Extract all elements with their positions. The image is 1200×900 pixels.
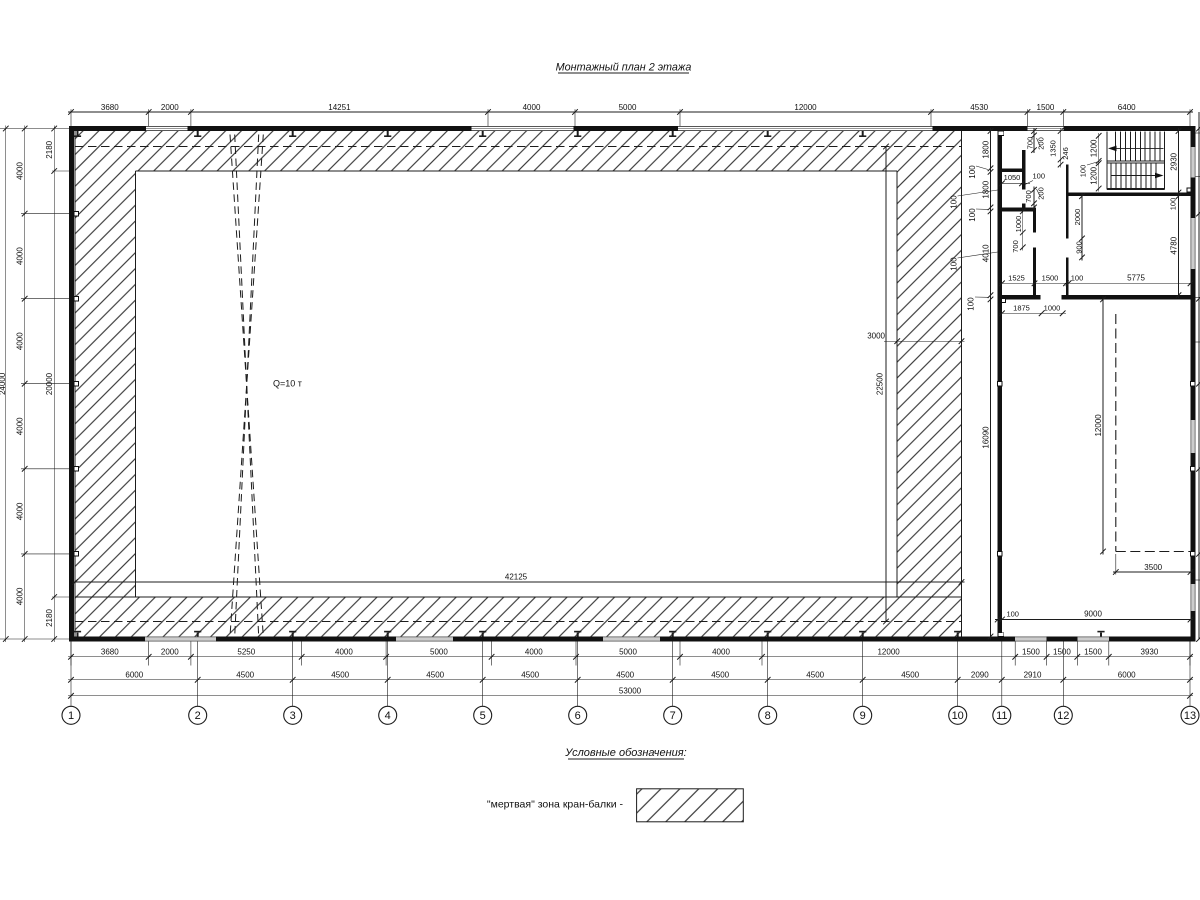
svg-text:Q=10 т: Q=10 т	[273, 378, 302, 388]
svg-text:7: 7	[670, 710, 676, 722]
svg-text:1050: 1050	[1004, 173, 1021, 182]
svg-text:6000: 6000	[1118, 671, 1136, 680]
svg-text:4500: 4500	[901, 671, 919, 680]
svg-text:5000: 5000	[619, 103, 637, 112]
svg-text:3680: 3680	[101, 103, 119, 112]
svg-text:1500: 1500	[1084, 648, 1102, 657]
svg-text:1500: 1500	[1037, 103, 1055, 112]
svg-text:2000: 2000	[161, 103, 179, 112]
svg-text:100: 100	[968, 165, 977, 179]
svg-text:100: 100	[949, 195, 958, 209]
svg-text:53000: 53000	[619, 686, 642, 695]
svg-text:13: 13	[1184, 710, 1196, 722]
svg-text:16090: 16090	[981, 426, 990, 449]
svg-text:1200: 1200	[1090, 139, 1099, 157]
svg-text:100: 100	[1033, 171, 1046, 180]
svg-text:10: 10	[952, 710, 964, 722]
svg-text:4780: 4780	[1169, 236, 1178, 254]
svg-text:4500: 4500	[331, 671, 349, 680]
svg-text:700: 700	[1026, 137, 1035, 150]
svg-text:4500: 4500	[806, 671, 824, 680]
svg-text:3680: 3680	[101, 648, 119, 657]
svg-text:12000: 12000	[1094, 414, 1103, 437]
svg-text:4000: 4000	[16, 247, 25, 265]
svg-text:12000: 12000	[877, 648, 900, 657]
svg-text:3500: 3500	[1144, 563, 1162, 572]
svg-text:1525: 1525	[1008, 274, 1025, 283]
svg-text:9000: 9000	[1084, 609, 1102, 618]
svg-text:1875: 1875	[1013, 303, 1030, 312]
svg-text:8: 8	[765, 710, 771, 722]
svg-text:4000: 4000	[525, 648, 543, 657]
svg-text:5000: 5000	[619, 648, 637, 657]
svg-text:3930: 3930	[1141, 648, 1159, 657]
svg-text:4000: 4000	[523, 103, 541, 112]
svg-text:5250: 5250	[237, 648, 255, 657]
svg-text:1500: 1500	[1053, 648, 1071, 657]
svg-text:2180: 2180	[45, 609, 54, 627]
svg-text:5000: 5000	[430, 648, 448, 657]
svg-text:100: 100	[967, 297, 976, 311]
svg-text:4: 4	[385, 710, 391, 722]
svg-text:1: 1	[68, 710, 74, 722]
svg-text:5775: 5775	[1127, 274, 1145, 283]
svg-text:1500: 1500	[1022, 648, 1040, 657]
svg-text:100: 100	[1168, 198, 1177, 211]
svg-text:4000: 4000	[16, 417, 25, 435]
svg-text:4000: 4000	[16, 502, 25, 520]
svg-text:2930: 2930	[1169, 152, 1178, 170]
svg-text:100: 100	[1006, 609, 1019, 618]
svg-text:100: 100	[1078, 165, 1087, 178]
svg-text:42125: 42125	[505, 572, 528, 581]
svg-text:200: 200	[1036, 137, 1045, 150]
svg-text:2910: 2910	[1024, 671, 1042, 680]
svg-text:5: 5	[480, 710, 486, 722]
svg-text:3: 3	[290, 710, 296, 722]
svg-text:4500: 4500	[616, 671, 634, 680]
svg-text:700: 700	[1011, 240, 1020, 253]
svg-text:4000: 4000	[335, 648, 353, 657]
svg-text:Условные обозначения:: Условные обозначения:	[564, 747, 686, 759]
svg-text:1800: 1800	[981, 180, 990, 198]
svg-text:6400: 6400	[1118, 103, 1136, 112]
svg-text:4500: 4500	[426, 671, 444, 680]
svg-text:22500: 22500	[876, 372, 885, 395]
svg-text:1350: 1350	[1049, 140, 1058, 157]
svg-text:4500: 4500	[236, 671, 254, 680]
svg-text:14251: 14251	[328, 103, 351, 112]
svg-text:4000: 4000	[16, 332, 25, 350]
svg-text:Монтажный план 2 этажа: Монтажный план 2 этажа	[556, 62, 692, 74]
svg-text:700: 700	[1024, 190, 1033, 203]
svg-text:4000: 4000	[712, 648, 730, 657]
svg-text:4500: 4500	[521, 671, 539, 680]
svg-text:12: 12	[1057, 710, 1069, 722]
svg-text:24000: 24000	[0, 372, 7, 395]
svg-text:2000: 2000	[1073, 209, 1082, 226]
svg-text:"мертвая" зона кран-балки -: "мертвая" зона кран-балки -	[487, 799, 624, 811]
svg-text:3000: 3000	[867, 332, 885, 341]
svg-text:1200: 1200	[1090, 166, 1099, 184]
svg-text:2090: 2090	[971, 671, 989, 680]
svg-text:6000: 6000	[125, 671, 143, 680]
svg-text:100: 100	[1071, 274, 1084, 283]
svg-text:2: 2	[195, 710, 201, 722]
svg-text:4500: 4500	[711, 671, 729, 680]
svg-text:900: 900	[1074, 241, 1083, 254]
svg-text:1000: 1000	[1014, 216, 1023, 233]
svg-text:4530: 4530	[970, 103, 988, 112]
svg-text:4000: 4000	[16, 587, 25, 605]
svg-text:100: 100	[949, 257, 958, 271]
svg-text:100: 100	[968, 208, 977, 222]
svg-text:4000: 4000	[16, 162, 25, 180]
svg-text:9: 9	[860, 710, 866, 722]
svg-text:1800: 1800	[981, 140, 990, 158]
svg-text:200: 200	[1036, 187, 1045, 200]
svg-text:1500: 1500	[1042, 274, 1059, 283]
svg-text:2180: 2180	[45, 140, 54, 158]
svg-text:11: 11	[996, 710, 1007, 722]
svg-text:246: 246	[1061, 147, 1070, 160]
svg-text:6: 6	[575, 710, 581, 722]
svg-text:1000: 1000	[1044, 303, 1061, 312]
svg-text:2000: 2000	[161, 648, 179, 657]
svg-text:12000: 12000	[794, 103, 817, 112]
